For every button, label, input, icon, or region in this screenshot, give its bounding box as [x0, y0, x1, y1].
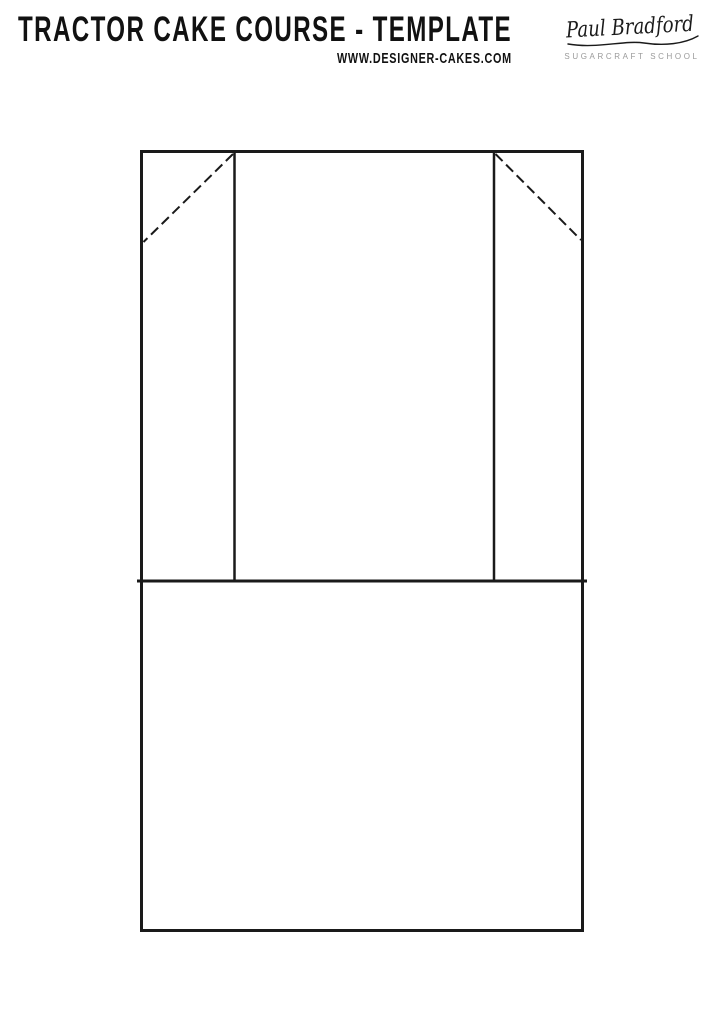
template-page: TRACTOR CAKE COURSE - TEMPLATE WWW.DESIG…: [0, 0, 720, 1026]
right-dashed-diagonal: [496, 154, 582, 240]
tractor-template-diagram: [0, 0, 720, 1026]
template-outline: [142, 152, 583, 931]
left-dashed-diagonal: [144, 154, 234, 242]
